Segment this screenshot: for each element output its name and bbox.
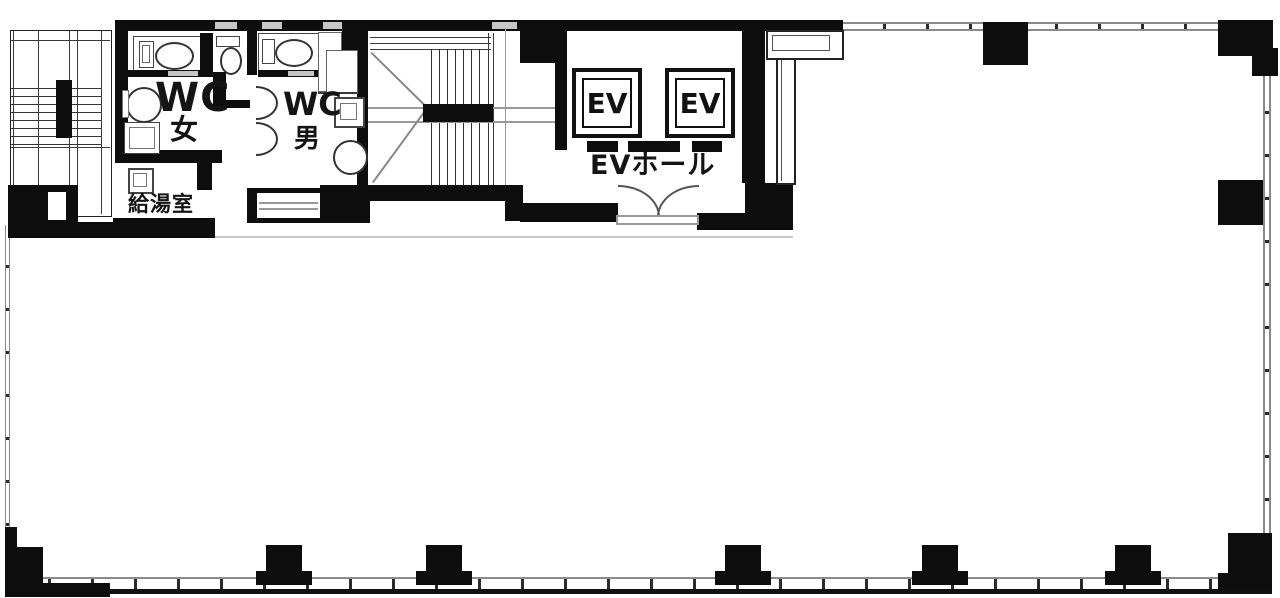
stair-mid-wall <box>423 104 493 122</box>
evhall-bottom-wall-right <box>697 213 750 230</box>
hand-sink-inner <box>340 103 357 120</box>
column-top <box>983 22 1028 65</box>
stair-tread <box>11 144 101 145</box>
toilet-bowl-icon <box>220 47 242 75</box>
stair-bottom-wall-ext <box>8 222 115 238</box>
pipe-shaft-line <box>781 55 782 181</box>
evhall-bottom-wall-left <box>520 203 618 222</box>
evhall-left-wall <box>555 28 567 150</box>
window-wall-right <box>1263 28 1271 579</box>
toilet-icon <box>262 39 275 64</box>
entrance-bay <box>766 30 844 60</box>
column-bottom-base <box>416 571 472 585</box>
elevator-2-label: EV <box>675 78 725 128</box>
toilet-tank-icon <box>216 36 240 47</box>
wash-basin-icon <box>333 140 368 175</box>
stairhall-bottom-wall <box>368 185 510 201</box>
double-door-leaf-icon <box>657 185 699 217</box>
floor-plan: WC 女 給湯室 WC 男 EV <box>0 0 1280 598</box>
elevator-2: EV <box>665 68 735 138</box>
column-bottom-left-corner <box>5 583 110 597</box>
elevator-1-label: EV <box>582 78 632 128</box>
toilet-bowl-icon <box>155 42 194 70</box>
double-door-leaf-icon <box>618 185 660 217</box>
entrance-bay-inner <box>772 35 830 51</box>
column-bottom-base <box>715 571 771 585</box>
elevator-1: EV <box>572 68 642 138</box>
top-wall-window <box>262 22 282 29</box>
utility-sink-inner <box>129 127 155 149</box>
column-right-mid <box>1218 180 1263 225</box>
stair-landing-line <box>370 43 491 44</box>
wcw-label: WC <box>155 78 230 118</box>
door-threshold-jamb <box>616 215 618 225</box>
corridor-column <box>520 20 557 63</box>
column-bottom-base <box>256 571 312 585</box>
kitchen-bottom-wall <box>113 218 215 238</box>
wcw-gender-label: 女 <box>170 116 198 144</box>
stair-door-notch <box>48 192 66 220</box>
wc-divider-wall <box>247 20 257 75</box>
top-wall-window <box>215 22 237 29</box>
urinal-icon <box>256 86 278 120</box>
column-bottom-base <box>1105 571 1161 585</box>
kitchen-sink-inner <box>133 173 147 187</box>
ev-hall-label: EVホール <box>590 152 715 179</box>
wcm-stall-door <box>288 71 314 76</box>
evhall-right-column <box>745 183 793 230</box>
window-wall-top <box>843 22 1222 31</box>
stair-edge-line <box>493 33 494 185</box>
urinal-icon <box>256 122 278 156</box>
evhall-right-wall <box>742 22 765 183</box>
wcm-label: WC <box>283 88 342 120</box>
top-wall-window <box>323 22 342 29</box>
stair-core-wall <box>56 80 72 138</box>
toilet-bowl-icon <box>275 39 313 67</box>
window-wall-bottom <box>8 577 1272 594</box>
basin-shelf-icon <box>122 90 129 118</box>
stair-landing-line <box>370 37 491 38</box>
column-bottom-right-corner <box>1218 573 1272 590</box>
stair-direction-line <box>371 52 427 107</box>
wcm-corner-block <box>342 30 362 50</box>
wcm-door-opening <box>257 193 320 218</box>
stair-rail-line <box>101 31 102 214</box>
wcm-door-leaf <box>259 202 318 204</box>
toilet-tank-icon <box>142 45 150 63</box>
stair-landing-line <box>11 40 110 41</box>
window-wall-left <box>5 225 10 529</box>
door-threshold-jamb <box>697 215 699 225</box>
kitchenette-label: 給湯室 <box>128 194 194 215</box>
wcm-door-leaf <box>259 208 318 210</box>
column-bottom-base <box>912 571 968 585</box>
wcm-gender-label: 男 <box>294 126 320 152</box>
door-threshold-line <box>616 215 699 217</box>
stair-landing-line <box>11 147 110 148</box>
column-top-right-corner <box>1252 48 1278 76</box>
corridor-line <box>505 28 506 185</box>
stair-bottom-wall <box>8 185 78 227</box>
door-threshold-line <box>616 223 699 225</box>
kitchen-right-wall <box>197 150 212 190</box>
stair-direction-line <box>372 108 428 184</box>
pipe-shaft <box>776 55 796 185</box>
